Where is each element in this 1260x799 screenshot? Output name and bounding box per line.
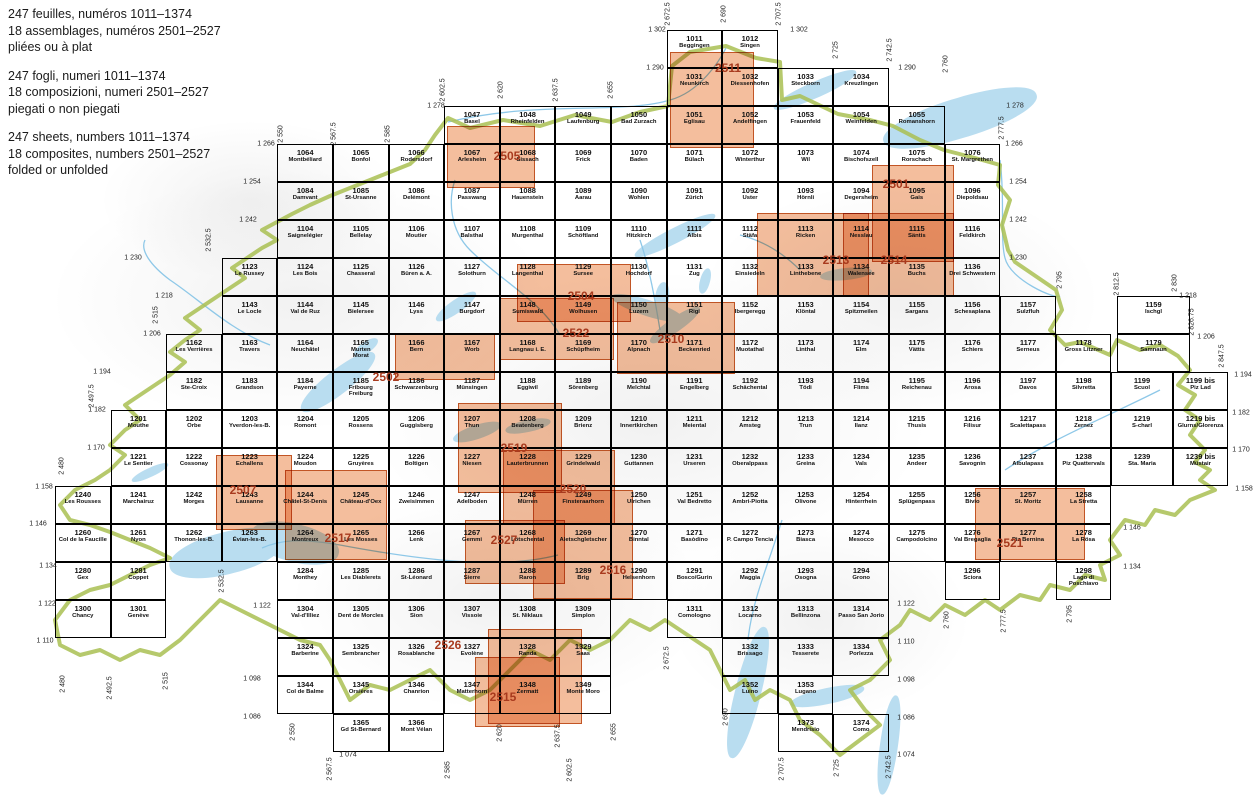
map-sheet-cell-1333[interactable]: 1333Tesserete	[778, 638, 834, 676]
map-sheet-cell-1209[interactable]: 1209Brienz	[555, 410, 611, 448]
map-sheet-cell-1168[interactable]: 1168Langnau i. E.	[500, 334, 556, 372]
map-sheet-cell-1177[interactable]: 1177Serneus	[1000, 334, 1056, 372]
sheet-name: Monte Moro	[556, 689, 610, 695]
map-sheet-cell-1325[interactable]: 1325Sembrancher	[333, 638, 389, 676]
map-sheet-cell-1048[interactable]: 1048Rheinfelden	[500, 106, 556, 144]
map-sheet-cell-1096[interactable]: 1096Diepoldsau	[945, 182, 1001, 220]
map-sheet-cell-1070[interactable]: 1070Baden	[611, 144, 667, 182]
map-sheet-cell-1107[interactable]: 1107Balsthal	[444, 220, 500, 258]
map-sheet-cell-1280[interactable]: 1280Gex	[55, 562, 111, 600]
map-sheet-cell-1124[interactable]: 1124Les Bois	[277, 258, 333, 296]
map-sheet-cell-1298[interactable]: 1298Lago di Poschiavo	[1056, 562, 1112, 600]
map-sheet-cell-1334[interactable]: 1334Porlezza	[833, 638, 889, 676]
map-sheet-cell-1127[interactable]: 1127Solothurn	[444, 258, 500, 296]
map-sheet-cell-1257[interactable]: 1257St. Moritz	[1000, 486, 1056, 524]
sheet-number: 1325	[334, 643, 388, 651]
sheet-name: Aarau	[556, 195, 610, 201]
composite-number-2515: 2515	[490, 690, 517, 704]
map-sheet-cell-1094[interactable]: 1094Degersheim	[833, 182, 889, 220]
map-sheet-cell-1287[interactable]: 1287Sierre	[444, 562, 500, 600]
map-sheet-cell-1219[interactable]: 1219S-charl	[1111, 410, 1173, 448]
map-sheet-cell-1130[interactable]: 1130Hochdorf	[611, 258, 667, 296]
map-sheet-cell-1346[interactable]: 1346Chanrion	[389, 676, 445, 714]
map-sheet-cell-1174[interactable]: 1174Elm	[833, 334, 889, 372]
map-sheet-cell-1266[interactable]: 1266Lenk	[389, 524, 445, 562]
map-sheet-cell-1084[interactable]: 1084Damvant	[277, 182, 333, 220]
map-sheet-cell-1262[interactable]: 1262Thonon-les-B.	[166, 524, 222, 562]
map-sheet-cell-1291[interactable]: 1291Bosco/Gurin	[667, 562, 723, 600]
northing-label: 1 290	[898, 65, 916, 72]
map-sheet-cell-1247[interactable]: 1247Adelboden	[444, 486, 500, 524]
map-sheet-cell-1231[interactable]: 1231Urseren	[667, 448, 723, 486]
sheet-name: Bonfol	[334, 157, 388, 163]
map-sheet-cell-1183[interactable]: 1183Grandson	[222, 372, 278, 410]
map-sheet-cell-1211[interactable]: 1211Meiental	[667, 410, 723, 448]
map-sheet-cell-1373[interactable]: 1373Mendrisio	[778, 714, 834, 752]
map-sheet-cell-1126[interactable]: 1126Büren a. A.	[389, 258, 445, 296]
map-sheet-cell-1172[interactable]: 1172Muotathal	[722, 334, 778, 372]
map-sheet-cell-1215[interactable]: 1215Thusis	[889, 410, 945, 448]
map-sheet-cell-1309[interactable]: 1309Simplon	[555, 600, 611, 638]
sheet-number: 1191	[668, 377, 722, 385]
sheet-name: Langenthal	[501, 271, 555, 277]
map-sheet-cell-1054[interactable]: 1054Weinfelden	[833, 106, 889, 144]
map-sheet-cell-1157[interactable]: 1157Sulzfluh	[1000, 296, 1056, 334]
sheet-name: Zug	[668, 271, 722, 277]
map-sheet-cell-1190[interactable]: 1190Melchtal	[611, 372, 667, 410]
map-sheet-cell-1093[interactable]: 1093Hörnli	[778, 182, 834, 220]
sheet-number: 1196	[946, 377, 1000, 385]
sheet-number: 1130	[612, 263, 666, 271]
map-sheet-cell-1365[interactable]: 1365Gd St-Bernard	[333, 714, 389, 752]
map-sheet-cell-1272[interactable]: 1272P. Campo Tencia	[722, 524, 778, 562]
map-sheet-cell-1194[interactable]: 1194Flims	[833, 372, 889, 410]
sheet-number: 1258	[1057, 491, 1111, 499]
easting-label: 2 480	[59, 457, 66, 475]
sheet-number: 1236	[946, 453, 1000, 461]
map-sheet-cell-1206[interactable]: 1206Guggisberg	[389, 410, 445, 448]
map-sheet-cell-1123[interactable]: 1123Le Russey	[222, 258, 278, 296]
map-sheet-cell-1159[interactable]: 1159Ischgl	[1117, 296, 1190, 334]
map-sheet-cell-1306[interactable]: 1306Sion	[389, 600, 445, 638]
sheet-number: 1245	[334, 491, 388, 499]
map-sheet-cell-1034[interactable]: 1034Kreuzlingen	[833, 68, 889, 106]
sheet-number: 1223	[223, 453, 277, 461]
map-sheet-cell-1071[interactable]: 1071Bülach	[667, 144, 723, 182]
map-sheet-cell-1156[interactable]: 1156Schesaplana	[945, 296, 1001, 334]
sheet-name: Rigi	[668, 309, 722, 315]
map-sheet-cell-1150[interactable]: 1150Luzern	[611, 296, 667, 334]
sheet-name: Linthebene	[779, 271, 833, 277]
map-sheet-cell-1288[interactable]: 1288Raron	[500, 562, 556, 600]
map-sheet-cell-1237[interactable]: 1237Albulapass	[1000, 448, 1056, 486]
map-sheet-cell-1253[interactable]: 1253Olivone	[778, 486, 834, 524]
map-sheet-cell-1229[interactable]: 1229Grindelwald	[555, 448, 611, 486]
map-sheet-cell-1110[interactable]: 1110Hitzkirch	[611, 220, 667, 258]
map-sheet-cell-1313[interactable]: 1313Bellinzona	[778, 600, 834, 638]
sheet-name: FribourgFreiburg	[334, 385, 388, 398]
sheet-number: 1352	[723, 681, 777, 689]
map-sheet-cell-1308[interactable]: 1308St. Niklaus	[500, 600, 556, 638]
map-sheet-cell-1162[interactable]: 1162Les Verrières	[166, 334, 222, 372]
sheet-number: 1156	[946, 301, 1000, 309]
map-sheet-cell-1151[interactable]: 1151Rigi	[667, 296, 723, 334]
easting-label: 2 690	[721, 5, 728, 23]
sheet-number: 1373	[779, 719, 833, 727]
map-sheet-cell-1076[interactable]: 1076St. Margrethen	[945, 144, 1001, 182]
sheet-name: Sciora	[946, 575, 1000, 581]
northing-label: 1 122	[897, 601, 915, 608]
sheet-name: Samnaun	[1118, 347, 1189, 353]
map-sheet-cell-1086[interactable]: 1086Delémont	[389, 182, 445, 220]
map-sheet-cell-1263[interactable]: 1263Évian-les-B.	[222, 524, 278, 562]
map-sheet-cell-1145[interactable]: 1145Bielersee	[333, 296, 389, 334]
map-sheet-cell-1091[interactable]: 1091Zürich	[667, 182, 723, 220]
map-sheet-cell-1108[interactable]: 1108Murgenthal	[500, 220, 556, 258]
sheet-name: Rheinfelden	[501, 119, 555, 125]
sheet-name: Val de Ruz	[278, 309, 332, 315]
map-sheet-cell-1136[interactable]: 1136Drei Schwestern	[945, 258, 1001, 296]
sheet-number: 1269	[556, 529, 610, 537]
map-sheet-cell-1125[interactable]: 1125Chasseral	[333, 258, 389, 296]
sheet-name: Biasca	[779, 537, 833, 543]
map-sheet-cell-1235[interactable]: 1235Andeer	[889, 448, 945, 486]
sheet-number: 1206	[390, 415, 444, 423]
map-sheet-cell-1217[interactable]: 1217Scalettapass	[1000, 410, 1056, 448]
map-sheet-cell-1064[interactable]: 1064Montbéliard	[277, 144, 333, 182]
map-sheet-cell-1285[interactable]: 1285Les Diablerets	[333, 562, 389, 600]
map-sheet-cell-1092[interactable]: 1092Uster	[722, 182, 778, 220]
sheet-name: Les Bois	[278, 271, 332, 277]
easting-label: 2 707.5	[776, 2, 783, 25]
map-sheet-cell-1345[interactable]: 1345Orsières	[333, 676, 389, 714]
map-sheet-cell-1198[interactable]: 1198Silvretta	[1056, 372, 1112, 410]
map-sheet-cell-1049[interactable]: 1049Laufenburg	[555, 106, 611, 144]
northing-label: 1 134	[39, 563, 57, 570]
map-sheet-cell-1250[interactable]: 1250Ulrichen	[611, 486, 667, 524]
map-sheet-cell-1224[interactable]: 1224Moudon	[277, 448, 333, 486]
map-sheet-cell-1311[interactable]: 1311Comologno	[667, 600, 723, 638]
sheet-number: 1136	[946, 263, 1000, 271]
sheet-number: 1292	[723, 567, 777, 575]
map-sheet-cell-1111[interactable]: 1111Albis	[667, 220, 723, 258]
map-sheet-cell-1239-bis[interactable]: 1239 bisMüstair	[1173, 448, 1228, 486]
northing-label: 1 218	[1179, 293, 1197, 300]
sheet-number: 1240	[56, 491, 110, 499]
map-sheet-cell-1163[interactable]: 1163Travers	[222, 334, 278, 372]
map-sheet-cell-1218[interactable]: 1218Zernez	[1056, 410, 1112, 448]
map-sheet-cell-1276[interactable]: 1276Val Bregaglia	[945, 524, 1001, 562]
sheet-number: 1146	[390, 301, 444, 309]
map-sheet-cell-1242[interactable]: 1242Morges	[166, 486, 222, 524]
map-sheet-cell-1146[interactable]: 1146Lyss	[389, 296, 445, 334]
sheet-name: Lyss	[390, 309, 444, 315]
map-sheet-cell-1196[interactable]: 1196Arosa	[945, 372, 1001, 410]
map-sheet-cell-1154[interactable]: 1154Spitzmeilen	[833, 296, 889, 334]
map-sheet-cell-1226[interactable]: 1226Boltigen	[389, 448, 445, 486]
map-sheet-cell-1088[interactable]: 1088Hauenstein	[500, 182, 556, 220]
sheet-number: 1329	[556, 643, 610, 651]
map-sheet-cell-1112[interactable]: 1112Stäfa	[722, 220, 778, 258]
map-sheet-cell-1349[interactable]: 1349Monte Moro	[555, 676, 611, 714]
map-sheet-cell-1205[interactable]: 1205Rossens	[333, 410, 389, 448]
map-sheet-cell-1239[interactable]: 1239Sta. Maria	[1111, 448, 1173, 486]
map-sheet-cell-1213[interactable]: 1213Trun	[778, 410, 834, 448]
sheet-name: Gruyères	[334, 461, 388, 467]
map-sheet-cell-1051[interactable]: 1051Eglisau	[667, 106, 723, 144]
map-sheet-cell-1352[interactable]: 1352Luino	[722, 676, 778, 714]
map-sheet-cell-1069[interactable]: 1069Frick	[555, 144, 611, 182]
sheet-number: 1234	[834, 453, 888, 461]
map-sheet-cell-1178[interactable]: 1178Gross Litzner	[1056, 334, 1112, 372]
sheet-number: 1241	[112, 491, 166, 499]
map-sheet-cell-1258[interactable]: 1258La Stretta	[1056, 486, 1112, 524]
map-sheet-cell-1254[interactable]: 1254Hinterrhein	[833, 486, 889, 524]
map-sheet-cell-1293[interactable]: 1293Osogna	[778, 562, 834, 600]
map-sheet-cell-1201[interactable]: 1201Mouthe	[111, 410, 167, 448]
sheet-number: 1261	[112, 529, 166, 537]
map-sheet-cell-1223[interactable]: 1223Echallens	[222, 448, 278, 486]
map-sheet-cell-1301[interactable]: 1301Genève	[111, 600, 167, 638]
map-sheet-cell-1256[interactable]: 1256Bivio	[945, 486, 1001, 524]
map-sheet-cell-1238[interactable]: 1238Piz Quattervals	[1056, 448, 1112, 486]
map-sheet-cell-1292[interactable]: 1292Maggia	[722, 562, 778, 600]
map-sheet-cell-1246[interactable]: 1246Zweisimmen	[389, 486, 445, 524]
map-sheet-cell-1105[interactable]: 1105Bellelay	[333, 220, 389, 258]
map-sheet-cell-1067[interactable]: 1067Arlesheim	[444, 144, 500, 182]
map-sheet-cell-1191[interactable]: 1191Engelberg	[667, 372, 723, 410]
map-sheet-cell-1286[interactable]: 1286St-Léonard	[389, 562, 445, 600]
easting-label: 2 497.5	[89, 384, 96, 407]
map-sheet-cell-1116[interactable]: 1116Feldkirch	[945, 220, 1001, 258]
map-sheet-cell-1353[interactable]: 1353Lugano	[778, 676, 834, 714]
map-sheet-cell-1216[interactable]: 1216Filisur	[945, 410, 1001, 448]
map-sheet-cell-1284[interactable]: 1284Monthey	[277, 562, 333, 600]
map-sheet-cell-1244[interactable]: 1244Châtel-St-Denis	[277, 486, 333, 524]
map-sheet-cell-1193[interactable]: 1193Tödi	[778, 372, 834, 410]
map-sheet-cell-1047[interactable]: 1047Basel	[444, 106, 500, 144]
sheet-name: Tödi	[779, 385, 833, 391]
map-sheet-cell-1252[interactable]: 1252Ambri-Piotta	[722, 486, 778, 524]
map-sheet-cell-1245[interactable]: 1245Château-d'Oex	[333, 486, 389, 524]
map-sheet-cell-1199[interactable]: 1199Scuol	[1111, 372, 1173, 410]
map-sheet-cell-1366[interactable]: 1366Mont Vélan	[389, 714, 445, 752]
sheet-number: 1274	[834, 529, 888, 537]
map-sheet-cell-1167[interactable]: 1167Worb	[444, 334, 500, 372]
sheet-name: Comologno	[668, 613, 722, 619]
map-sheet-cell-1073[interactable]: 1073Wil	[778, 144, 834, 182]
sheet-name: Baden	[612, 157, 666, 163]
map-sheet-cell-1033[interactable]: 1033Steckborn	[778, 68, 834, 106]
map-sheet-cell-1204[interactable]: 1204Romont	[277, 410, 333, 448]
map-sheet-cell-1188[interactable]: 1188Eggiwil	[500, 372, 556, 410]
map-sheet-cell-1050[interactable]: 1050Bad Zurzach	[611, 106, 667, 144]
sheet-number: 1218	[1057, 415, 1111, 423]
map-sheet-cell-1219-bis[interactable]: 1219 bisGlurns/Glorenza	[1173, 410, 1228, 448]
map-sheet-cell-1332[interactable]: 1332Brissago	[722, 638, 778, 676]
sheet-name: Marchairuz	[112, 499, 166, 505]
map-sheet-cell-1269[interactable]: 1269Aletschgletscher	[555, 524, 611, 562]
map-sheet-cell-1207[interactable]: 1207Thun	[444, 410, 500, 448]
map-sheet-cell-1144[interactable]: 1144Val de Ruz	[277, 296, 333, 334]
map-sheet-cell-1165[interactable]: 1165MurtenMorat	[333, 334, 389, 372]
map-sheet-cell-1227[interactable]: 1227Niesen	[444, 448, 500, 486]
map-sheet-cell-1085[interactable]: 1085St-Ursanne	[333, 182, 389, 220]
sheet-number: 1108	[501, 225, 555, 233]
map-sheet-cell-1234[interactable]: 1234Vals	[833, 448, 889, 486]
northing-label: 1 110	[37, 638, 54, 645]
map-sheet-cell-1184[interactable]: 1184Payerne	[277, 372, 333, 410]
sheet-name: Aletschgletscher	[556, 537, 610, 543]
sheet-number: 1270	[612, 529, 666, 537]
sheet-name: Barberine	[278, 651, 332, 657]
map-sheet-cell-1128[interactable]: 1128Langenthal	[500, 258, 556, 296]
map-sheet-cell-1195[interactable]: 1195Reichenau	[889, 372, 945, 410]
sheet-name: Locarno	[723, 613, 777, 619]
map-sheet-cell-1011[interactable]: 1011Beggingen	[667, 30, 723, 68]
map-sheet-cell-1065[interactable]: 1065Bonfol	[333, 144, 389, 182]
map-sheet-cell-1143[interactable]: 1143Le Locle	[222, 296, 278, 334]
map-sheet-cell-1273[interactable]: 1273Biasca	[778, 524, 834, 562]
sheet-name: Bern	[390, 347, 444, 353]
map-sheet-cell-1232[interactable]: 1232Oberalppass	[722, 448, 778, 486]
map-sheet-cell-1175[interactable]: 1175Vättis	[889, 334, 945, 372]
sheet-number: 1072	[723, 149, 777, 157]
map-sheet-cell-1240[interactable]: 1240Les Rousses	[55, 486, 111, 524]
map-sheet-cell-1241[interactable]: 1241Marchairuz	[111, 486, 167, 524]
composite-number-2519: 2519	[501, 441, 528, 455]
map-sheet-cell-1294[interactable]: 1294Grono	[833, 562, 889, 600]
sheet-number: 1193	[779, 377, 833, 385]
map-sheet-cell-1199-bis[interactable]: 1199 bisPiz Lad	[1173, 372, 1228, 410]
sheet-name: Buchs	[890, 271, 944, 277]
map-sheet-cell-1374[interactable]: 1374Como	[833, 714, 889, 752]
map-sheet-cell-1210[interactable]: 1210Innertkirchen	[611, 410, 667, 448]
map-sheet-cell-1066[interactable]: 1066Rodersdorf	[389, 144, 445, 182]
map-sheet-cell-1329[interactable]: 1329Saas	[555, 638, 611, 676]
map-sheet-cell-1147[interactable]: 1147Burgdorf	[444, 296, 500, 334]
sheet-name: Saas	[556, 651, 610, 657]
easting-label: 2 532.5	[219, 569, 226, 592]
map-sheet-cell-1328[interactable]: 1328Randa	[500, 638, 556, 676]
map-sheet-cell-1187[interactable]: 1187Münsingen	[444, 372, 500, 410]
map-sheet-cell-1031[interactable]: 1031Neunkirch	[667, 68, 723, 106]
map-sheet-cell-1173[interactable]: 1173Linthal	[778, 334, 834, 372]
map-sheet-cell-1296[interactable]: 1296Sciora	[945, 562, 1001, 600]
map-sheet-cell-1072[interactable]: 1072Winterthur	[722, 144, 778, 182]
map-sheet-cell-1106[interactable]: 1106Moutier	[389, 220, 445, 258]
sheet-name: Frick	[556, 157, 610, 163]
map-sheet-cell-1153[interactable]: 1153Klöntal	[778, 296, 834, 334]
map-sheet-cell-1324[interactable]: 1324Barberine	[277, 638, 333, 676]
map-sheet-cell-1236[interactable]: 1236Savognin	[945, 448, 1001, 486]
map-sheet-cell-1189[interactable]: 1189Sörenberg	[555, 372, 611, 410]
map-sheet-cell-1300[interactable]: 1300Chancy	[55, 600, 111, 638]
sheet-name: La Stretta	[1057, 499, 1111, 505]
composite-number-2514: 2514	[881, 253, 908, 267]
map-sheet-cell-1152[interactable]: 1152Ibergeregg	[722, 296, 778, 334]
map-sheet-cell-1203[interactable]: 1203Yverdon-les-B.	[222, 410, 278, 448]
map-sheet-cell-1052[interactable]: 1052Andelfingen	[722, 106, 778, 144]
sheet-name: Melchtal	[612, 385, 666, 391]
map-sheet-cell-1182[interactable]: 1182Ste-Croix	[166, 372, 222, 410]
map-sheet-cell-1251[interactable]: 1251Val Bedretto	[667, 486, 723, 524]
northing-label: 1 146	[29, 521, 47, 528]
map-sheet-cell-1304[interactable]: 1304Val-d'Illiez	[277, 600, 333, 638]
easting-label: 2 812.5	[1114, 272, 1121, 295]
map-sheet-cell-1271[interactable]: 1271Basòdino	[667, 524, 723, 562]
sheet-name: Bosco/Gurin	[668, 575, 722, 581]
sheet-number: 1199	[1112, 377, 1172, 385]
map-sheet-cell-1305[interactable]: 1305Dent de Morcles	[333, 600, 389, 638]
map-sheet-cell-1230[interactable]: 1230Guttannen	[611, 448, 667, 486]
map-sheet-cell-1314[interactable]: 1314Passo San Jorio	[833, 600, 889, 638]
easting-label: 2 742.5	[887, 38, 894, 61]
map-sheet-cell-1202[interactable]: 1202Orbe	[166, 410, 222, 448]
map-sheet-cell-1090[interactable]: 1090Wohlen	[611, 182, 667, 220]
sheet-number: 1254	[834, 491, 888, 499]
map-sheet-cell-1164[interactable]: 1164Neuchâtel	[277, 334, 333, 372]
map-sheet-cell-1221[interactable]: 1221Le Sentier	[111, 448, 167, 486]
map-sheet-cell-1261[interactable]: 1261Nyon	[111, 524, 167, 562]
map-sheet-cell-1166[interactable]: 1166Bern	[389, 334, 445, 372]
map-sheet-cell-1278[interactable]: 1278La Rösa	[1056, 524, 1112, 562]
map-sheet-cell-1089[interactable]: 1089Aarau	[555, 182, 611, 220]
map-sheet-cell-1248[interactable]: 1248Mürren	[500, 486, 556, 524]
sheet-number: 1287	[445, 567, 499, 575]
sheet-name: Elm	[834, 347, 888, 353]
map-sheet-cell-1270[interactable]: 1270Binntal	[611, 524, 667, 562]
sheet-number: 1053	[779, 111, 833, 119]
easting-label: 2 515	[163, 672, 170, 690]
map-sheet-cell-1087[interactable]: 1087Passwang	[444, 182, 500, 220]
map-sheet-cell-1053[interactable]: 1053Frauenfeld	[778, 106, 834, 144]
map-sheet-cell-1222[interactable]: 1222Cossonay	[166, 448, 222, 486]
map-sheet-cell-1055[interactable]: 1055Romanshorn	[889, 106, 945, 144]
map-sheet-cell-1260[interactable]: 1260Col de la Faucille	[55, 524, 111, 562]
map-sheet-cell-1109[interactable]: 1109Schöftland	[555, 220, 611, 258]
map-sheet-cell-1155[interactable]: 1155Sargans	[889, 296, 945, 334]
map-sheet-cell-1275[interactable]: 1275Campodolcino	[889, 524, 945, 562]
sheet-number: 1262	[167, 529, 221, 537]
map-sheet-cell-1148[interactable]: 1148Sumiswald	[500, 296, 556, 334]
map-sheet-cell-1255[interactable]: 1255Splügenpass	[889, 486, 945, 524]
map-sheet-cell-1192[interactable]: 1192Schächental	[722, 372, 778, 410]
map-sheet-cell-1307[interactable]: 1307Vissoie	[444, 600, 500, 638]
sheet-number: 1284	[278, 567, 332, 575]
map-sheet-cell-1074[interactable]: 1074Bischofszell	[833, 144, 889, 182]
sheet-name: Hitzkirch	[612, 233, 666, 239]
map-sheet-cell-1344[interactable]: 1344Col de Balme	[277, 676, 333, 714]
map-sheet-cell-1104[interactable]: 1104Saignelégier	[277, 220, 333, 258]
map-sheet-cell-1274[interactable]: 1274Mesocco	[833, 524, 889, 562]
sheet-number: 1366	[390, 719, 444, 727]
map-sheet-cell-1312[interactable]: 1312Locarno	[722, 600, 778, 638]
map-sheet-cell-1131[interactable]: 1131Zug	[667, 258, 723, 296]
map-sheet-cell-1225[interactable]: 1225Gruyères	[333, 448, 389, 486]
map-sheet-cell-1212[interactable]: 1212Amsteg	[722, 410, 778, 448]
map-sheet-cell-1281[interactable]: 1281Coppet	[111, 562, 167, 600]
map-sheet-cell-1197[interactable]: 1197Davos	[1000, 372, 1056, 410]
sheet-number: 1275	[890, 529, 944, 537]
sheet-name: Bischofszell	[834, 157, 888, 163]
map-sheet-cell-1132[interactable]: 1132Einsiedeln	[722, 258, 778, 296]
map-sheet-cell-1176[interactable]: 1176Schiers	[945, 334, 1001, 372]
map-sheet-cell-1233[interactable]: 1233Greina	[778, 448, 834, 486]
easting-label: 2 760	[943, 55, 950, 73]
map-sheet-cell-1214[interactable]: 1214Ilanz	[833, 410, 889, 448]
map-sheet-cell-1179[interactable]: 1179Samnaun	[1117, 334, 1190, 372]
